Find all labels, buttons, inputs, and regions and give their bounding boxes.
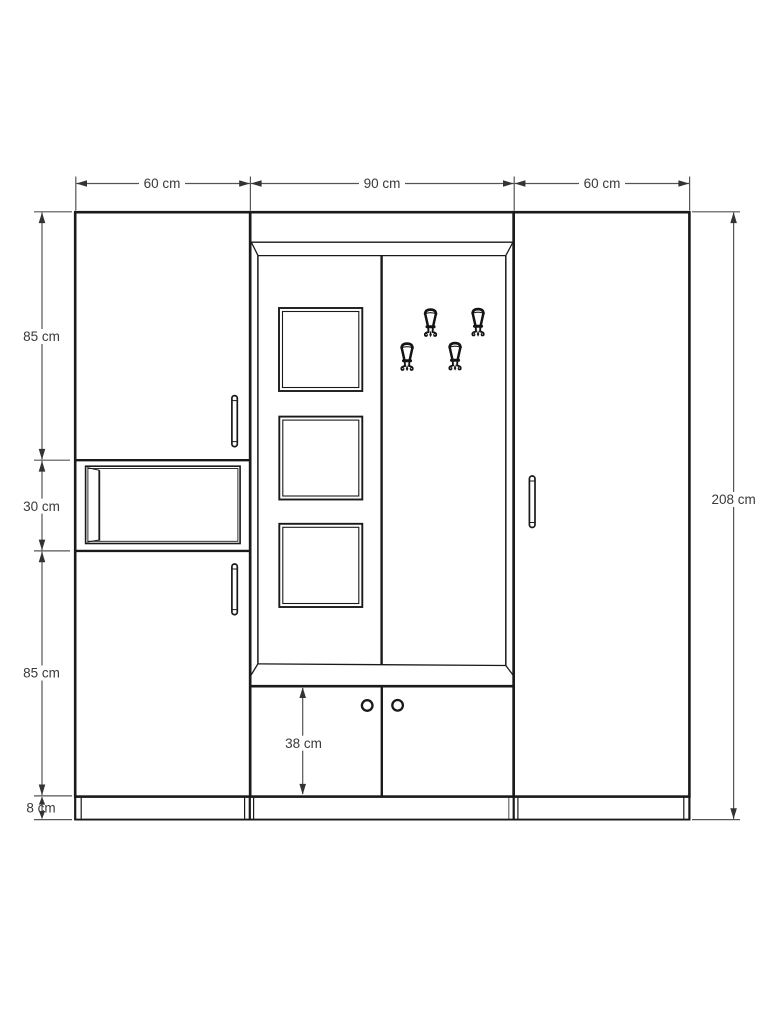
svg-text:30 cm: 30 cm <box>23 499 60 514</box>
svg-text:85 cm: 85 cm <box>23 329 60 344</box>
svg-text:60 cm: 60 cm <box>144 176 181 191</box>
svg-text:38 cm: 38 cm <box>285 736 322 751</box>
svg-text:60 cm: 60 cm <box>584 176 621 191</box>
svg-text:208 cm: 208 cm <box>711 492 755 507</box>
svg-text:90 cm: 90 cm <box>364 176 401 191</box>
svg-text:85 cm: 85 cm <box>23 666 60 681</box>
